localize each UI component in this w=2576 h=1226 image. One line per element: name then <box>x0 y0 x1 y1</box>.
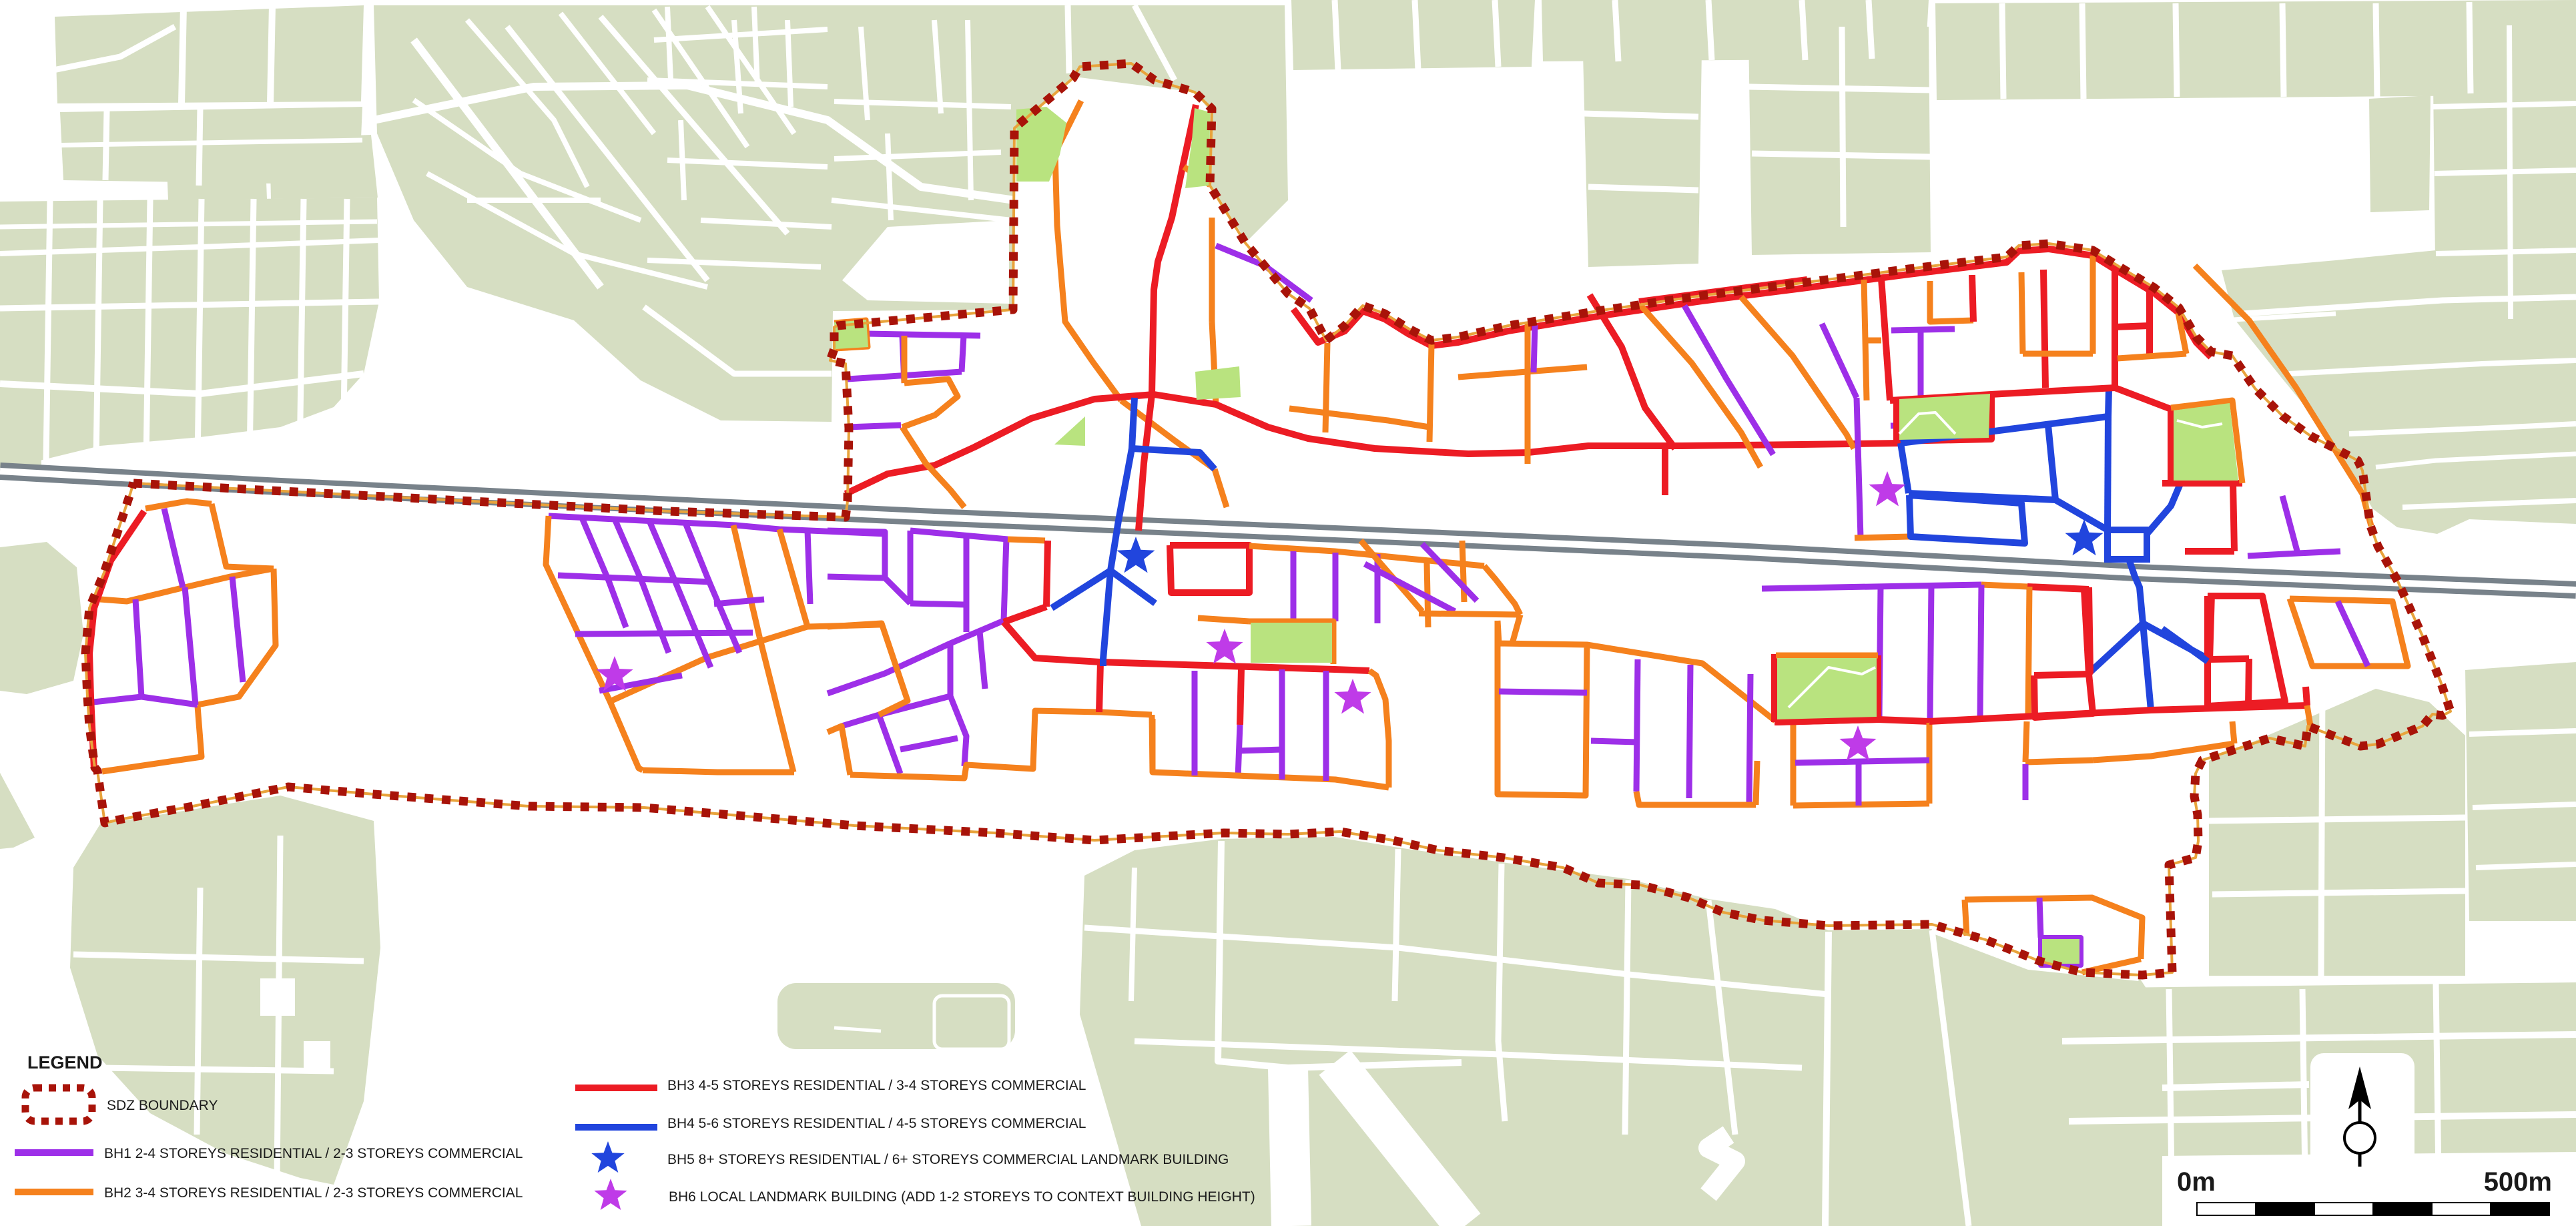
svg-text:BH5 8+ STOREYS RESIDENTIAL /: BH5 8+ STOREYS RESIDENTIAL / 6+ STOREYS … <box>667 1152 1229 1167</box>
svg-text:500m: 500m <box>2484 1167 2552 1197</box>
svg-text:0m: 0m <box>2177 1167 2216 1197</box>
svg-text:BH3 4-5 STOREYS RESIDENTIAL: BH3 4-5 STOREYS RESIDENTIAL / 3-4 STOREY… <box>667 1078 1086 1093</box>
svg-text:SDZ BOUNDARY: SDZ BOUNDARY <box>107 1098 218 1113</box>
svg-text:BH1 2-4 STOREYS RESIDENTIAL: BH1 2-4 STOREYS RESIDENTIAL / 2-3 STOREY… <box>104 1146 523 1161</box>
svg-text:BH2 3-4 STOREYS RESIDENTIAL: BH2 3-4 STOREYS RESIDENTIAL / 2-3 STOREY… <box>104 1185 523 1201</box>
svg-text:BH6 LOCAL LANDMARK BUILDING (: BH6 LOCAL LANDMARK BUILDING (ADD 1-2 STO… <box>669 1189 1255 1205</box>
svg-text:BH4 5-6 STOREYS RESIDENTIAL: BH4 5-6 STOREYS RESIDENTIAL / 4-5 STOREY… <box>667 1116 1086 1131</box>
svg-text:LEGEND: LEGEND <box>27 1052 103 1072</box>
